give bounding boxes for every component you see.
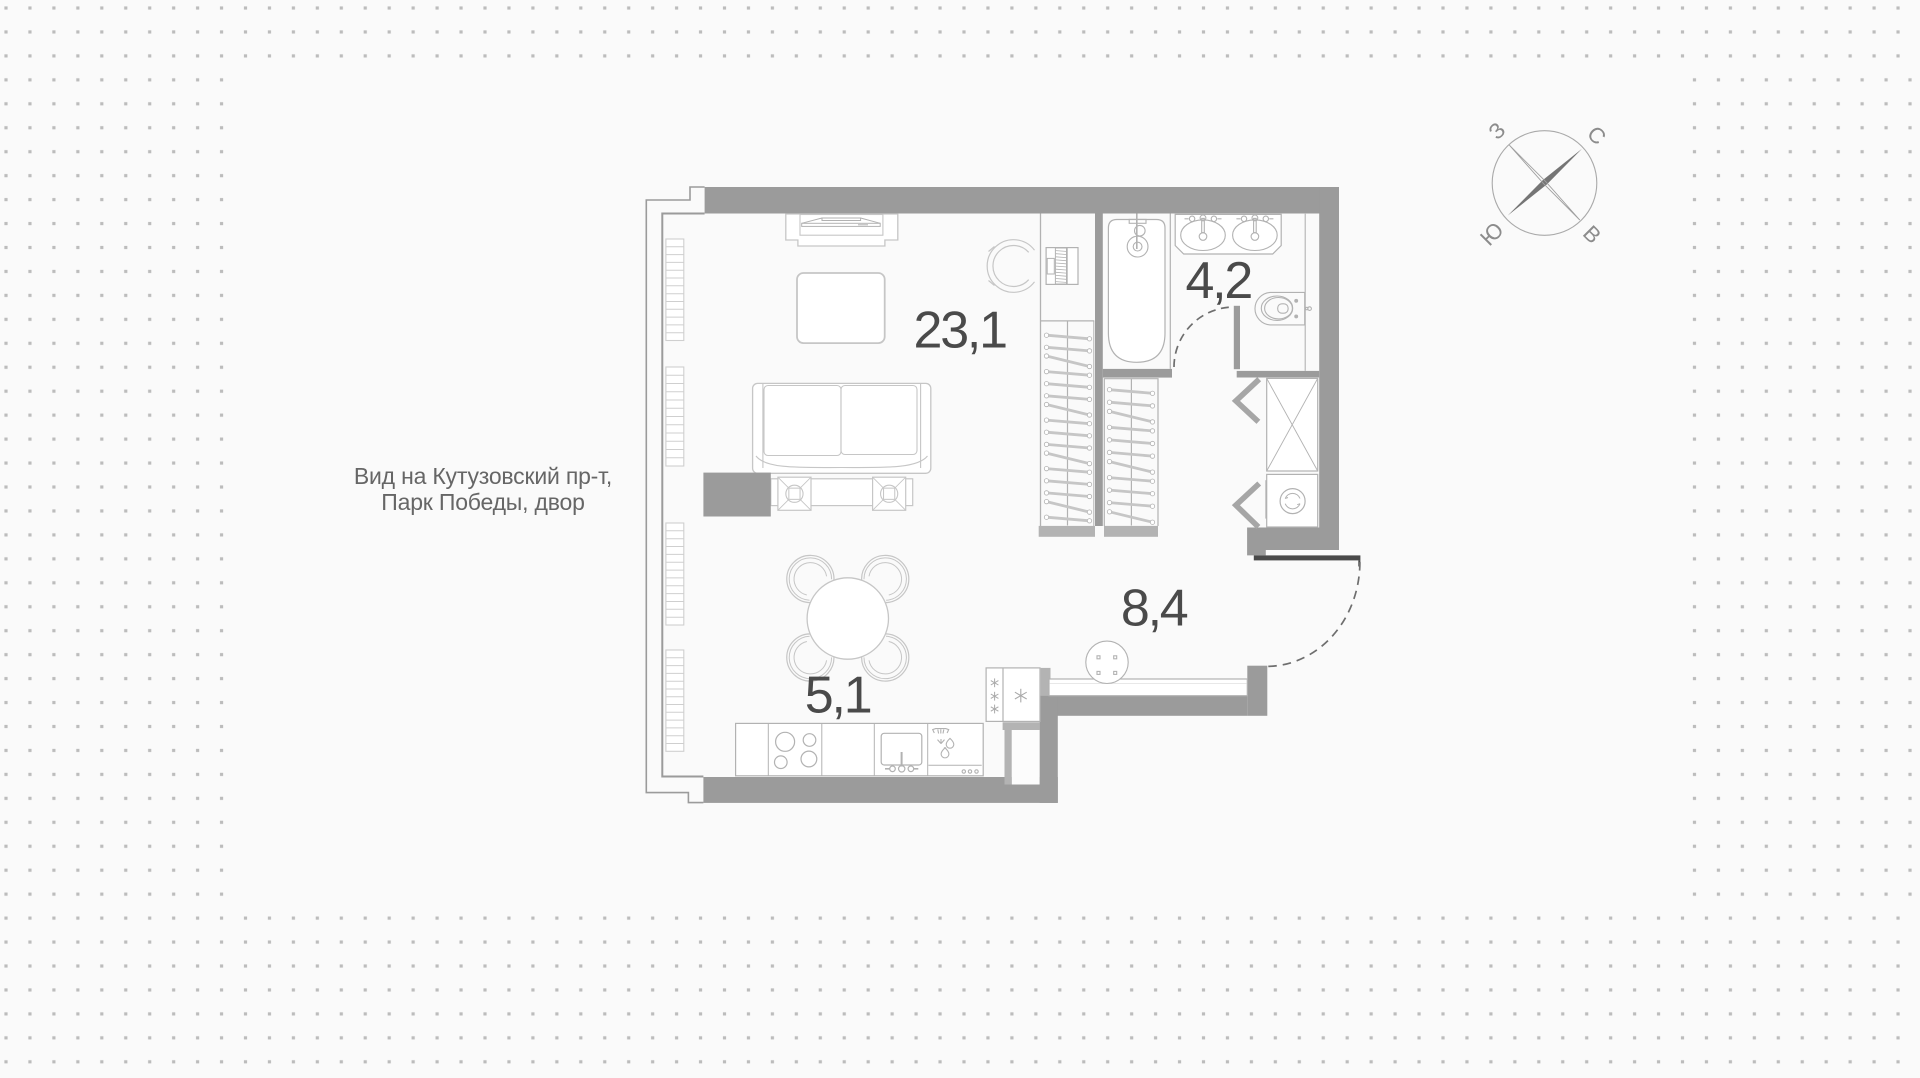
svg-text:5,1: 5,1 — [805, 667, 871, 725]
svg-text:8,4: 8,4 — [1121, 580, 1188, 638]
svg-text:23,1: 23,1 — [913, 302, 1006, 360]
svg-text:Парк Победы, двор: Парк Победы, двор — [381, 489, 584, 515]
svg-text:4,2: 4,2 — [1185, 252, 1251, 310]
svg-text:Вид на Кутузовский пр-т,: Вид на Кутузовский пр-т, — [354, 463, 612, 489]
